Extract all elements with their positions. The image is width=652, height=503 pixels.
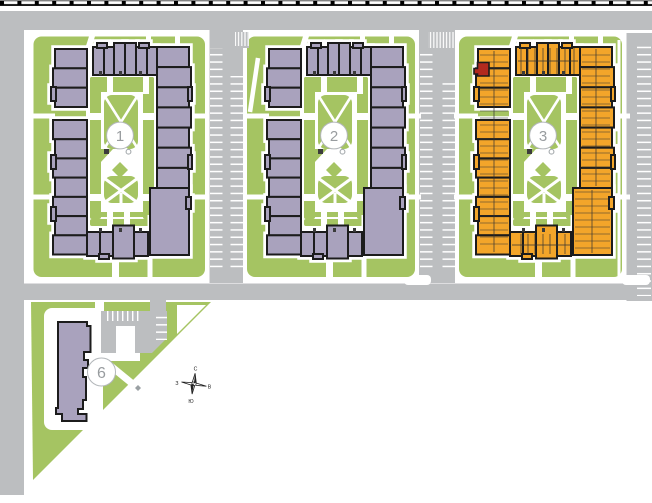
svg-text:3: 3: [539, 128, 547, 145]
svg-text:1: 1: [116, 128, 124, 145]
svg-text:З: З: [175, 381, 178, 387]
svg-text:6: 6: [97, 365, 106, 382]
svg-text:С: С: [194, 367, 198, 373]
svg-text:Ю: Ю: [188, 399, 193, 405]
svg-text:2: 2: [330, 128, 338, 145]
svg-text:В: В: [208, 385, 212, 391]
